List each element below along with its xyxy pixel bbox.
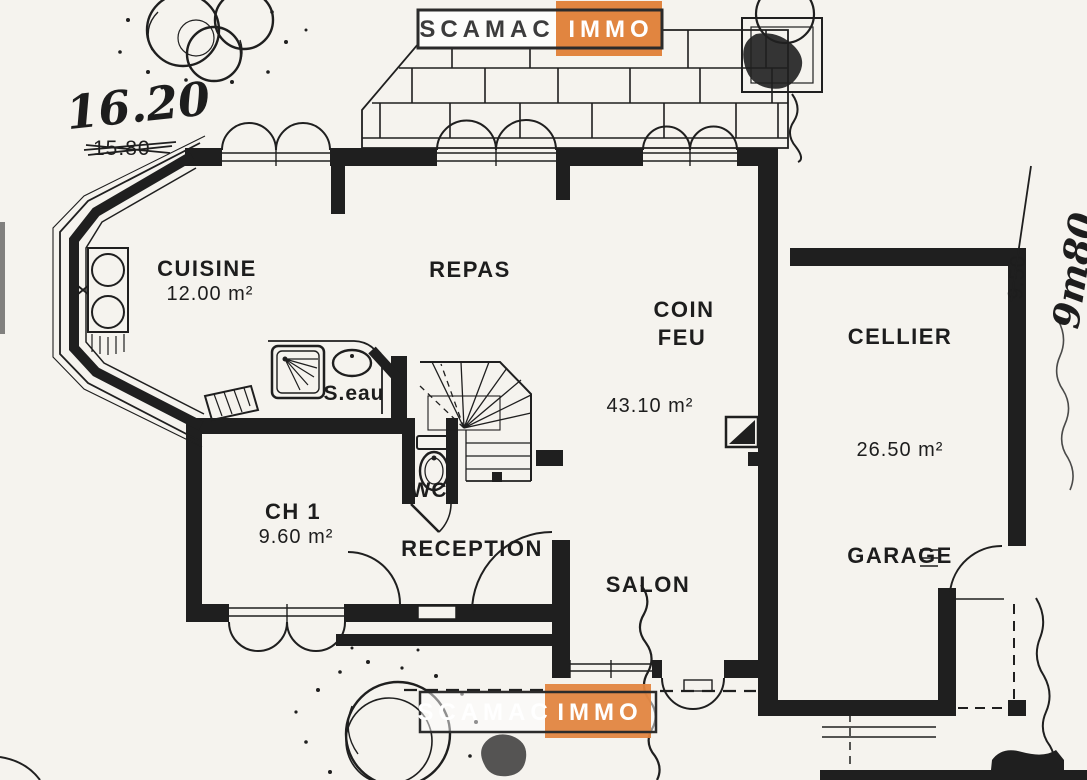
logo-bottom-scamac: SCAMAC <box>417 699 552 726</box>
shower-tray <box>272 346 324 398</box>
garden-trees <box>118 0 307 90</box>
label-wc: WC <box>411 479 448 502</box>
label-garage: GARAGE <box>847 543 953 568</box>
staircase <box>420 362 531 481</box>
walls <box>185 148 1026 716</box>
label-reception: RECEPTION <box>401 536 543 561</box>
floorplan-canvas: 16.20 15.80 9.50 9m80 CUISINE 12.00 m² R… <box>0 0 1087 780</box>
label-ch1-area: 9.60 m² <box>259 526 334 548</box>
label-coin-feu-area: 43.10 m² <box>607 395 694 417</box>
garage-side-door-arc <box>950 546 1002 592</box>
label-ch1: CH 1 <box>265 499 321 524</box>
entrance-threshold <box>418 606 456 619</box>
logo-bottom: SCAMAC IMMO <box>417 684 656 738</box>
logo-top-immo: IMMO <box>568 16 653 43</box>
dim-depth-handwritten: 9m80 <box>1043 209 1087 331</box>
label-salon: SALON <box>606 572 691 597</box>
fireplace-symbol <box>726 417 758 447</box>
door-swing-arc <box>348 552 400 604</box>
logo-top: SCAMAC IMMO <box>418 1 662 56</box>
label-repas: REPAS <box>429 257 511 282</box>
scanned-floor-plan: 16.20 15.80 9.50 9m80 CUISINE 12.00 m² R… <box>0 0 1087 780</box>
label-cellier-area: 26.50 m² <box>857 439 944 461</box>
washbasin <box>333 350 371 376</box>
logo-bottom-immo: IMMO <box>557 699 642 726</box>
doormat-hatch <box>205 386 258 420</box>
label-coin-feu-1: COIN <box>654 297 715 322</box>
hedge-right <box>1036 598 1055 776</box>
label-coin-feu-2: FEU <box>658 325 707 350</box>
logo-top-scamac: SCAMAC <box>419 16 554 43</box>
wc-door-leaf <box>411 504 439 532</box>
shower-spray-icon <box>285 359 318 390</box>
scan-artifact <box>0 222 5 334</box>
label-cuisine-area: 12.00 m² <box>167 283 254 305</box>
label-cuisine: CUISINE <box>157 256 257 281</box>
label-salle-eau: S.eau <box>323 382 384 405</box>
dim-width-handwritten: 16.20 <box>64 71 213 140</box>
label-cellier: CELLIER <box>848 324 953 349</box>
hedge-line <box>640 585 660 780</box>
